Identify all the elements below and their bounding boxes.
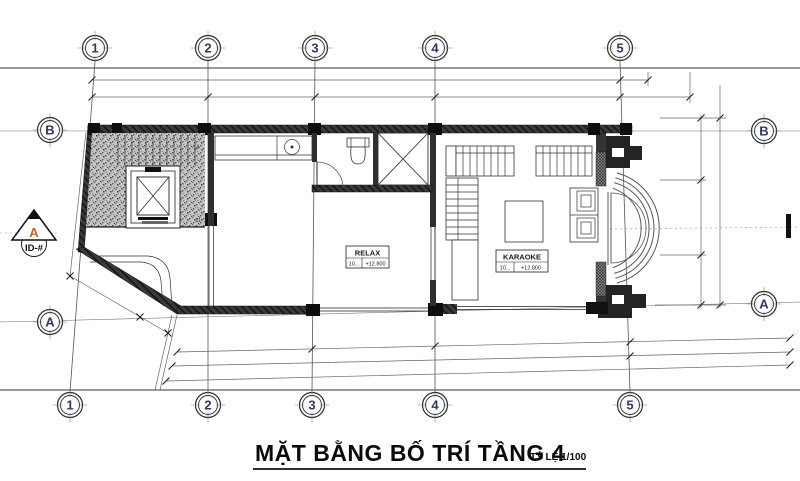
wall-wc-left xyxy=(312,133,317,162)
svg-text:1: 1 xyxy=(91,41,98,56)
dimension-ticks-bottom xyxy=(163,335,794,385)
drawing-title: MẶT BẰNG BỐ TRÍ TẦNG 4 xyxy=(255,439,565,466)
svg-text:A: A xyxy=(759,297,769,312)
grid-bubble-rowA-right: A xyxy=(747,287,781,321)
stair-step-number-bottom: 21 xyxy=(195,218,201,224)
room-name: RELAX xyxy=(355,249,380,258)
title-block: MẶT BẰNG BỐ TRÍ TẦNG 4 TỶ LỆ 1/100 xyxy=(253,439,587,469)
wall-top xyxy=(88,125,632,133)
svg-text:B: B xyxy=(759,124,768,139)
room-elevation: +12.800 xyxy=(365,262,385,268)
sofa-vertical-segment xyxy=(446,178,478,300)
svg-text:B: B xyxy=(45,123,54,138)
wall-wc-right xyxy=(373,133,378,187)
room-number: 10... xyxy=(500,266,511,272)
mullion-hatch-bottom xyxy=(596,262,606,296)
elevator xyxy=(126,166,180,228)
sofa-right-segment xyxy=(536,146,592,176)
landing-curve-inner xyxy=(90,262,163,306)
dimension-lines xyxy=(67,72,794,390)
svg-text:3: 3 xyxy=(311,41,318,56)
room-label-relax: RELAX 10... +12.800 xyxy=(346,246,389,268)
mullion-hatch-top xyxy=(596,152,606,186)
grid-bubble-col1-top: 1 xyxy=(78,31,112,65)
floor-plan-sheet: 14 21 xyxy=(0,0,800,481)
svg-text:4: 4 xyxy=(431,41,439,56)
svg-text:1: 1 xyxy=(66,398,73,413)
room-number: 10... xyxy=(349,262,360,268)
elevator-door xyxy=(138,217,168,220)
grid-bubble-col4-top: 4 xyxy=(418,31,452,65)
counter-sink xyxy=(215,136,312,160)
section-cut-mark xyxy=(786,214,791,238)
dimension-ticks-right xyxy=(698,115,724,309)
svg-text:5: 5 xyxy=(626,398,633,413)
elevator-counterweight xyxy=(145,167,161,172)
stair-core: 14 21 xyxy=(86,133,205,306)
wall-diagonal xyxy=(76,247,181,314)
room-elevation: +12.800 xyxy=(521,266,541,272)
table xyxy=(505,201,543,242)
stair-step-number-top: 14 xyxy=(193,145,199,151)
grid-bubble-rowB-left: B xyxy=(33,113,67,147)
grid-bubble-rowA-left: A xyxy=(33,305,67,339)
grid-bubble-col3-top: 3 xyxy=(298,31,332,65)
svg-text:5: 5 xyxy=(616,41,623,56)
relax-room xyxy=(215,133,428,188)
grid-bubble-col5-top: 5 xyxy=(603,31,637,65)
svg-text:3: 3 xyxy=(308,398,315,413)
grid-bubble-col3-bottom: 3 xyxy=(295,388,329,422)
door-swing-arc xyxy=(317,162,343,188)
wall-relax-karaoke xyxy=(430,133,436,227)
wall-wc-bottom xyxy=(312,185,432,192)
toilet-icon xyxy=(347,138,369,164)
svg-text:2: 2 xyxy=(204,398,211,413)
grid-bubble-col1-bottom: 1 xyxy=(53,388,87,422)
grid-bubble-rowB-right: B xyxy=(747,114,781,148)
wall-bottom-left xyxy=(177,306,312,314)
wall-stairhall xyxy=(208,133,214,226)
grid-bubble-col4-bottom: 4 xyxy=(418,388,452,422)
shaft xyxy=(378,133,428,185)
wc-room xyxy=(317,138,369,188)
section-marker-ref: ID-# xyxy=(25,243,44,254)
floor-plan-drawing: 14 21 xyxy=(0,0,800,481)
cabinet xyxy=(452,240,478,300)
grid-bubble-col5-bottom: 5 xyxy=(613,388,647,422)
room-name: KARAOKE xyxy=(503,253,541,262)
karaoke-room xyxy=(446,146,598,300)
section-marker: A ID-# xyxy=(12,210,56,257)
armchair-pair xyxy=(570,188,598,242)
grid-bubble-col2-bottom: 2 xyxy=(191,388,225,422)
room-label-karaoke: KARAOKE 10... +12.800 xyxy=(496,250,548,272)
svg-text:2: 2 xyxy=(204,41,211,56)
section-marker-letter: A xyxy=(29,225,39,240)
svg-text:4: 4 xyxy=(431,398,439,413)
grid-bubble-col2-top: 2 xyxy=(191,31,225,65)
drawing-scale: TỶ LỆ 1/100 xyxy=(530,450,587,463)
sofa-left-segment xyxy=(446,146,514,176)
svg-text:A: A xyxy=(45,315,55,330)
